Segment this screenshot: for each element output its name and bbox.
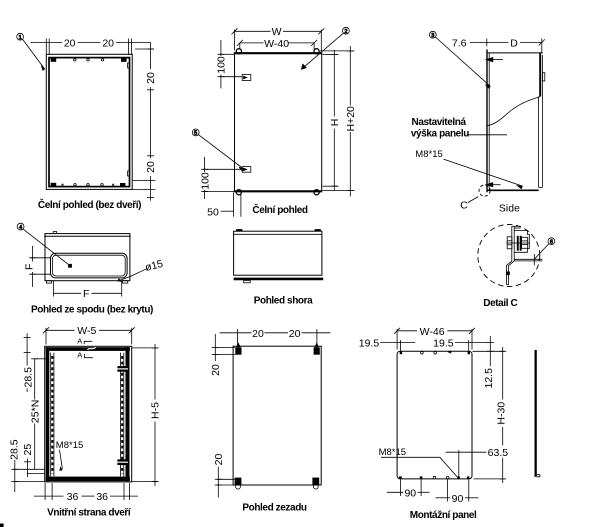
svg-text:W-5: W-5 <box>77 325 96 337</box>
svg-text:36: 36 <box>96 491 108 503</box>
svg-text:A: A <box>77 351 82 360</box>
svg-text:Čelní pohled: Čelní pohled <box>252 203 307 216</box>
svg-text:20: 20 <box>289 328 301 340</box>
svg-text:Pohled ze spodu (bez krytu): Pohled ze spodu (bez krytu) <box>31 305 153 316</box>
svg-text:63.5: 63.5 <box>488 447 509 459</box>
svg-text:2: 2 <box>344 29 347 35</box>
svg-text:90: 90 <box>452 493 464 505</box>
svg-text:Side: Side <box>499 203 520 215</box>
svg-text:19.5: 19.5 <box>359 337 380 349</box>
svg-text:Pohled zezadu: Pohled zezadu <box>242 503 307 514</box>
svg-text:Detail C: Detail C <box>483 298 517 309</box>
svg-text:5: 5 <box>194 131 197 137</box>
svg-text:H+20: H+20 <box>345 106 357 132</box>
svg-text:Vnitřní strana dveří: Vnitřní strana dveří <box>47 508 132 519</box>
svg-text:20: 20 <box>145 72 157 84</box>
svg-text:20: 20 <box>252 328 264 340</box>
svg-text:M8*15: M8*15 <box>415 149 442 160</box>
svg-text:M8*15: M8*15 <box>379 447 406 458</box>
svg-text:F: F <box>24 264 36 270</box>
svg-text:20: 20 <box>102 38 114 50</box>
svg-text:20: 20 <box>210 364 222 376</box>
svg-text:6: 6 <box>550 240 553 246</box>
svg-text:Čelní pohled (bez dveří): Čelní pohled (bez dveří) <box>38 198 141 211</box>
svg-text:90: 90 <box>404 488 416 500</box>
svg-text:H-5: H-5 <box>150 402 162 419</box>
svg-text:M8*15: M8*15 <box>56 440 83 451</box>
svg-text:H-30: H-30 <box>495 402 507 425</box>
svg-text:7.6: 7.6 <box>452 37 467 49</box>
svg-text:25: 25 <box>22 444 34 456</box>
svg-text:100: 100 <box>216 56 228 74</box>
svg-text:výška panelu: výška panelu <box>411 128 469 139</box>
svg-text:F: F <box>83 288 89 300</box>
svg-text:W-46: W-46 <box>420 326 445 338</box>
svg-text:3: 3 <box>431 33 434 39</box>
svg-text:50: 50 <box>207 206 219 218</box>
svg-text:Montážní panel: Montážní panel <box>410 510 477 521</box>
svg-text:H: H <box>329 119 341 127</box>
svg-text:D: D <box>510 37 518 49</box>
svg-text:20: 20 <box>213 454 225 466</box>
svg-text:19.5: 19.5 <box>433 337 454 349</box>
svg-text:C: C <box>460 200 468 212</box>
svg-text:28.5: 28.5 <box>9 439 21 460</box>
svg-text:25*N: 25*N <box>30 400 42 423</box>
svg-text:A: A <box>77 336 82 345</box>
svg-text:100: 100 <box>199 172 211 190</box>
svg-text:36: 36 <box>67 491 79 503</box>
svg-text:4: 4 <box>19 225 22 231</box>
svg-text:20: 20 <box>64 38 76 50</box>
svg-text:Pohled shora: Pohled shora <box>254 296 313 307</box>
svg-text:W-40: W-40 <box>264 38 289 50</box>
svg-text:1: 1 <box>19 35 22 41</box>
svg-text:Nastavitelná: Nastavitelná <box>412 117 467 128</box>
svg-text:20: 20 <box>145 161 157 173</box>
svg-text:12.5: 12.5 <box>483 368 495 389</box>
svg-text:28.5: 28.5 <box>23 367 35 388</box>
svg-text:W: W <box>272 26 282 38</box>
